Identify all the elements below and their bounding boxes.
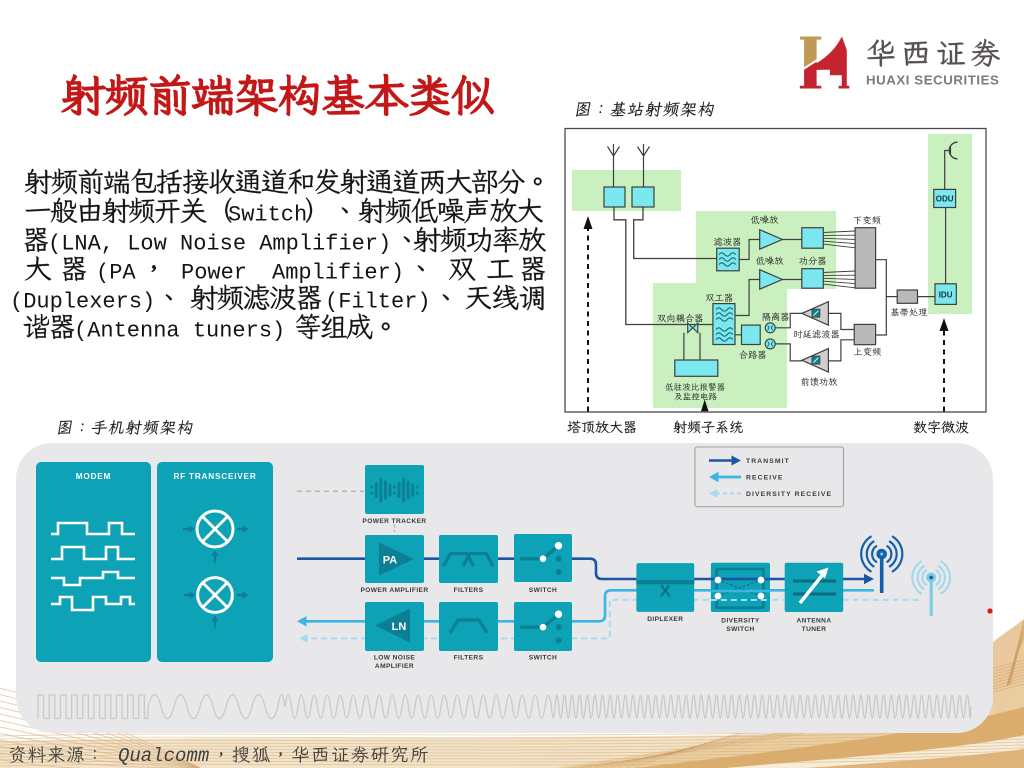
svg-text:DIVERSITY: DIVERSITY <box>721 618 760 625</box>
svg-text:Amplifier): Amplifier) <box>272 261 404 286</box>
svg-text:Power: Power <box>181 261 247 286</box>
svg-text:RF TRANSCEIVER: RF TRANSCEIVER <box>173 472 256 481</box>
svg-text:SWITCH: SWITCH <box>529 587 557 594</box>
svg-text:X: X <box>660 582 672 601</box>
svg-text:Qualcomm: Qualcomm <box>118 745 209 767</box>
svg-text:SWITCH: SWITCH <box>726 626 754 633</box>
svg-text:PA: PA <box>383 555 398 567</box>
svg-text:LOW NOISE: LOW NOISE <box>374 655 416 662</box>
svg-text:(Antenna tuners): (Antenna tuners) <box>74 319 285 344</box>
svg-text:SWITCH: SWITCH <box>529 655 557 662</box>
svg-text:POWER TRACKER: POWER TRACKER <box>362 518 426 525</box>
svg-text:LN: LN <box>392 621 407 633</box>
svg-text:AMPLIFIER: AMPLIFIER <box>375 663 414 670</box>
svg-text:RECEIVE: RECEIVE <box>746 475 784 482</box>
svg-text:FILTERS: FILTERS <box>454 587 484 594</box>
svg-text:Switch: Switch <box>228 203 307 228</box>
svg-text:FILTERS: FILTERS <box>454 655 484 662</box>
svg-text:(PA: (PA <box>96 261 136 286</box>
svg-text:IDU: IDU <box>939 291 953 300</box>
svg-text:POWER AMPLIFIER: POWER AMPLIFIER <box>360 587 428 594</box>
svg-text:HUAXI SECURITIES: HUAXI SECURITIES <box>866 73 999 88</box>
svg-text:(Filter): (Filter) <box>325 290 431 315</box>
svg-text:(LNA, Low Noise Amplifier): (LNA, Low Noise Amplifier) <box>48 232 391 257</box>
svg-text:ODU: ODU <box>936 195 954 204</box>
svg-text:MODEM: MODEM <box>76 472 111 481</box>
svg-text:TRANSMIT: TRANSMIT <box>746 458 790 465</box>
svg-text:(Duplexers): (Duplexers) <box>10 290 155 315</box>
svg-text:TUNER: TUNER <box>802 626 827 633</box>
svg-text:ANTENNA: ANTENNA <box>796 618 831 625</box>
svg-text:DIPLEXER: DIPLEXER <box>647 616 683 623</box>
svg-text:DIVERSITY RECEIVE: DIVERSITY RECEIVE <box>746 491 832 498</box>
